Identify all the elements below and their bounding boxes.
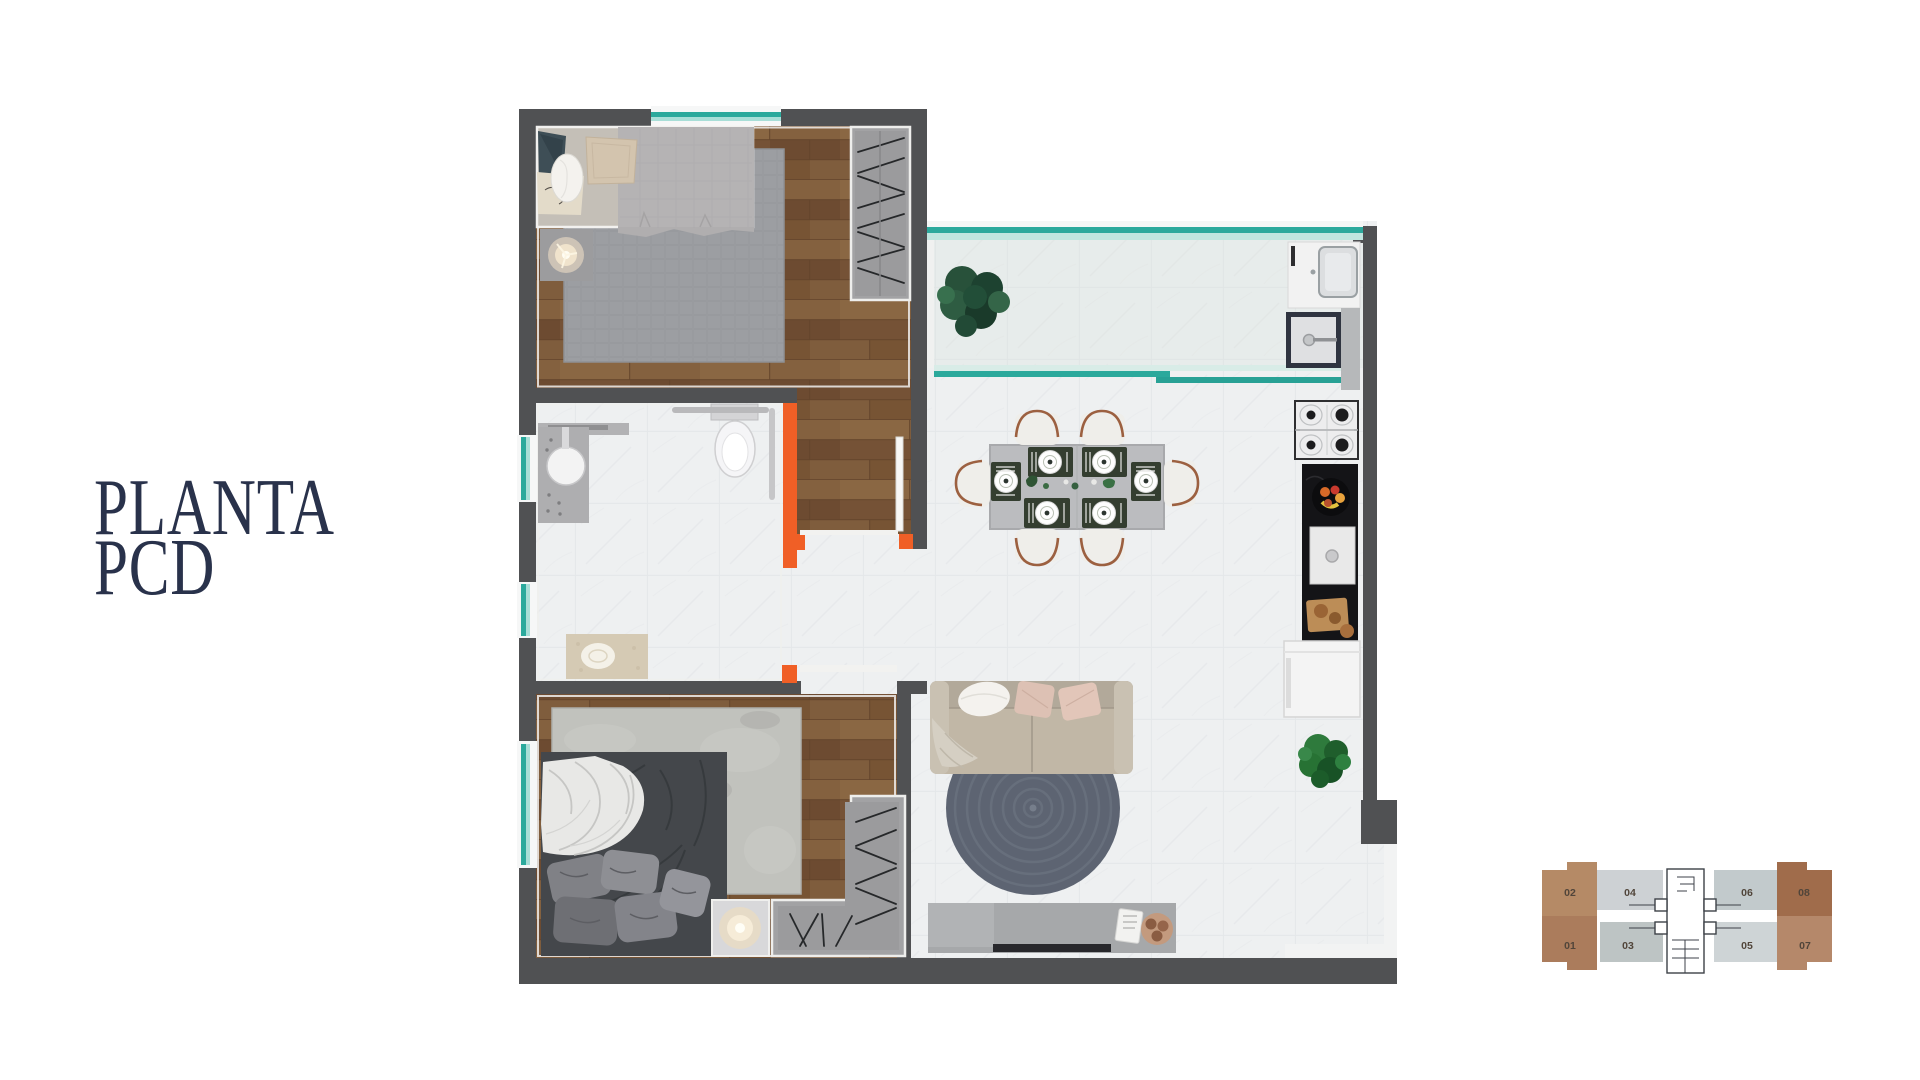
svg-text:04: 04: [1624, 887, 1636, 899]
svg-text:02: 02: [1564, 887, 1576, 899]
svg-text:03: 03: [1622, 940, 1634, 952]
svg-text:06: 06: [1741, 887, 1753, 899]
svg-text:05: 05: [1741, 940, 1753, 952]
svg-text:08: 08: [1798, 887, 1810, 899]
svg-text:01: 01: [1564, 940, 1576, 952]
svg-text:07: 07: [1799, 940, 1811, 952]
